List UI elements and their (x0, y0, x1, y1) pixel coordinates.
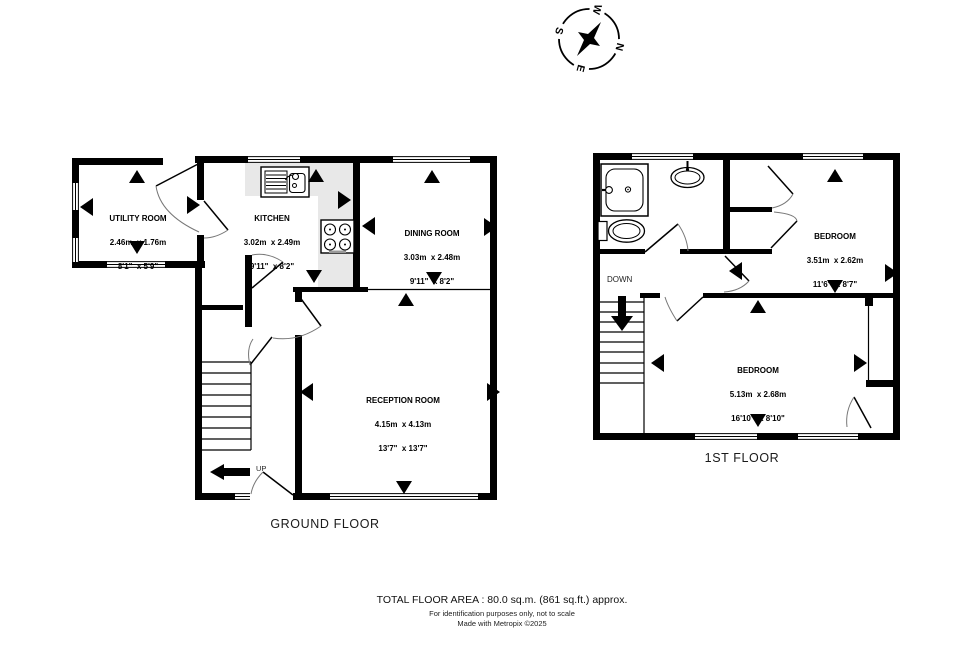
credit: Made with Metropix ©2025 (457, 619, 546, 628)
ground-floor-title: GROUND FLOOR (270, 517, 379, 531)
floorplan-drawing: W N E S (0, 0, 980, 659)
room-dim-imperial: 8'1" x 5'9" (109, 263, 166, 271)
room-dim-imperial: 9'11" x 8'2" (404, 278, 460, 286)
stairs-ground (202, 362, 251, 450)
bathroom-sink (671, 161, 704, 188)
room-name: BEDROOM (807, 233, 863, 241)
room-name: KITCHEN (244, 215, 300, 223)
room-name: UTILITY ROOM (109, 215, 166, 223)
down-arrow (611, 296, 633, 331)
total-floor-area: TOTAL FLOOR AREA : 80.0 sq.m. (861 sq.ft… (377, 594, 628, 606)
room-name: RECEPTION ROOM (366, 397, 440, 405)
reception-room-label: RECEPTION ROOM 4.15m x 4.13m 13'7" x 13'… (366, 381, 440, 461)
bedroom2-label: BEDROOM 5.13m x 2.68m 16'10" x 8'10" (730, 351, 786, 431)
room-dim-imperial: 9'11" x 8'2" (244, 263, 300, 271)
bedroom1-label: BEDROOM 3.51m x 2.62m 11'6" x 8'7" (807, 217, 863, 297)
up-label: UP (256, 464, 266, 473)
kitchen-label: KITCHEN 3.02m x 2.49m 9'11" x 8'2" (244, 199, 300, 279)
disclaimer: For identification purposes only, not to… (429, 609, 575, 618)
down-label: DOWN (607, 275, 632, 284)
room-name: DINING ROOM (404, 230, 460, 238)
kitchen-sink (261, 167, 309, 197)
floorplan-page: W N E S (0, 0, 980, 659)
room-name: BEDROOM (730, 367, 786, 375)
utility-room-label: UTILITY ROOM 2.46m x 1.76m 8'1" x 5'9" (109, 199, 166, 279)
room-dim-imperial: 16'10" x 8'10" (730, 415, 786, 423)
hob (321, 220, 354, 253)
toilet (598, 220, 645, 242)
room-dim-imperial: 13'7" x 13'7" (366, 445, 440, 453)
room-dim-metric: 4.15m x 4.13m (366, 421, 440, 429)
room-dim-metric: 3.51m x 2.62m (807, 257, 863, 265)
room-dim-imperial: 11'6" x 8'7" (807, 281, 863, 289)
bathtub (601, 164, 648, 216)
room-dim-metric: 3.03m x 2.48m (404, 254, 460, 262)
compass-star (577, 22, 601, 56)
dining-room-label: DINING ROOM 3.03m x 2.48m 9'11" x 8'2" (404, 214, 460, 294)
compass-rose: W N E S (552, 2, 629, 77)
up-arrow (210, 464, 250, 480)
room-dim-metric: 3.02m x 2.49m (244, 239, 300, 247)
room-dim-metric: 2.46m x 1.76m (109, 239, 166, 247)
first-floor-title: 1ST FLOOR (705, 451, 780, 465)
room-dim-metric: 5.13m x 2.68m (730, 391, 786, 399)
